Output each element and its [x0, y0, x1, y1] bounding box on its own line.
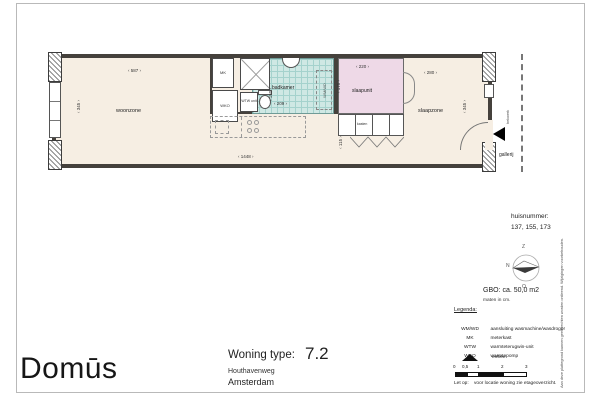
note-text: voor locatie woning zie etageoverzicht.	[474, 381, 556, 386]
note-label: Let op:	[454, 381, 469, 386]
wtw-label: WTW unit	[241, 100, 256, 104]
badkamer-label: badkamer	[272, 85, 294, 91]
entree-legend-label: entree	[492, 355, 506, 360]
scale-tick: 0	[453, 364, 456, 369]
huisnummer-label: huisnummer:	[511, 213, 549, 220]
dim-kasten-height: 115	[338, 136, 343, 149]
wall-hatch-top-left	[48, 52, 62, 82]
dim-slaapzone-height: 345	[462, 100, 467, 113]
scale-tick: 0,5	[462, 364, 468, 369]
washer-dryer-space: WM/WD	[316, 70, 332, 110]
cooktop-burner-icon	[254, 128, 259, 133]
drawing-sheet: WM/WD MK WKO WTW unit kasten woonzone ba	[0, 0, 600, 400]
wardrobe-divider	[389, 115, 390, 135]
woning-type-value: 7.2	[305, 344, 329, 364]
woning-type-label: Woning type:	[228, 349, 295, 361]
kitchen-counter-dashed	[210, 116, 306, 138]
facade-window	[49, 82, 61, 138]
wall-hatch-bottom-left	[48, 140, 62, 170]
disclaimer-text: Aan deze plattegrond kunnen geen rechten…	[560, 200, 564, 388]
domus-logo: Domūs	[20, 352, 118, 386]
units-note: maten in cm.	[483, 298, 510, 303]
dim-woonzone-height: 345	[76, 100, 81, 113]
wtw-closet: WTW unit	[240, 92, 258, 112]
legend-title: Legenda:	[454, 307, 477, 313]
compass-rose: Z N O	[506, 244, 546, 292]
gallery-rail-label: hekwerk	[506, 88, 510, 124]
right-wall-window	[484, 84, 494, 98]
wardrobe-row: kasten	[338, 114, 404, 136]
wardrobe-divider	[372, 115, 373, 135]
woonzone-label: woonzone	[116, 108, 141, 114]
wall-hatch-top-right	[482, 52, 496, 82]
gallerij-label: gallerij	[499, 152, 513, 158]
gallery-edge-line	[521, 54, 523, 172]
cooktop-burner-icon	[254, 120, 259, 125]
slaapunit-label: slaapunit	[352, 88, 372, 94]
dim-badkamer-height: 150	[268, 88, 273, 101]
washer-dryer-label: WM/WD	[322, 83, 327, 98]
entree-arrow-icon	[493, 127, 505, 141]
dim-slaapzone-width: 280	[424, 70, 437, 75]
slaapunit-room	[338, 58, 404, 114]
wardrobe-divider	[355, 115, 356, 135]
meterkast-closet: MK	[212, 58, 234, 88]
entree-legend-icon	[462, 354, 478, 361]
dim-total-width: 1448	[238, 154, 254, 159]
huisnummer-values: 137, 155, 173	[511, 224, 551, 231]
dim-badkamer-width: 209	[274, 101, 287, 106]
cooktop-burner-icon	[247, 120, 252, 125]
dim-slaapunit-width: 220	[356, 64, 369, 69]
scale-tick: 2	[501, 364, 504, 369]
kasten-label: kasten	[357, 123, 367, 127]
dim-woonzone-width: 587	[128, 68, 141, 73]
scale-tick: 1	[477, 364, 480, 369]
city-name: Amsterdam	[228, 377, 274, 387]
compass-letter-top: Z	[522, 244, 525, 250]
shower-icon	[240, 58, 270, 90]
street-name: Houthavenweg	[228, 368, 275, 375]
gbo-value: GBO: ca. 50,0 m2	[483, 287, 539, 294]
cooktop-burner-icon	[247, 128, 252, 133]
compass-needle-icon	[510, 252, 542, 284]
folding-door-icon	[350, 136, 404, 149]
scale-bar	[455, 372, 527, 377]
slaapzone-label: slaapzone	[418, 108, 443, 114]
wko-label: WKO	[220, 104, 230, 108]
kitchen-divider	[241, 117, 243, 137]
dim-slaapunit-height: 175	[336, 80, 341, 93]
meterkast-label: MK	[220, 71, 226, 75]
scale-tick: 3	[525, 364, 528, 369]
kitchen-appliance-dashed	[215, 120, 229, 134]
